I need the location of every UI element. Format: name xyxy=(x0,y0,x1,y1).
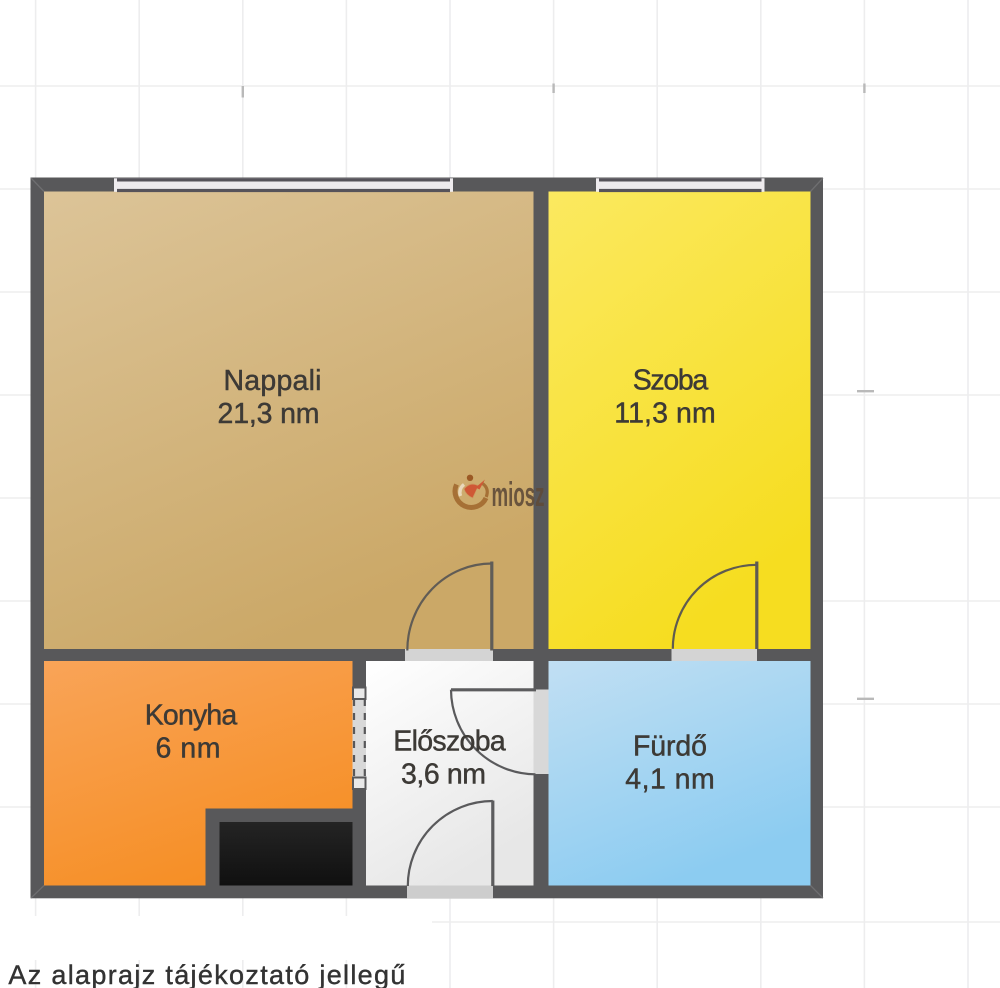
svg-text:3,6 nm: 3,6 nm xyxy=(401,759,486,791)
svg-text:21,3 nm: 21,3 nm xyxy=(218,398,320,430)
svg-text:miosz: miosz xyxy=(492,476,545,514)
svg-text:Fürdő: Fürdő xyxy=(633,731,707,763)
svg-text:Szoba: Szoba xyxy=(633,365,709,397)
svg-text:6 nm: 6 nm xyxy=(156,733,221,765)
svg-text:Konyha: Konyha xyxy=(145,700,238,732)
svg-text:Nappali: Nappali xyxy=(224,365,322,397)
svg-text:Az alaprajz tájékoztató jelleg: Az alaprajz tájékoztató jellegű xyxy=(8,960,405,988)
svg-text:4,1 nm: 4,1 nm xyxy=(625,764,715,796)
svg-text:11,3 nm: 11,3 nm xyxy=(614,398,716,430)
svg-text:Előszoba: Előszoba xyxy=(393,726,506,758)
